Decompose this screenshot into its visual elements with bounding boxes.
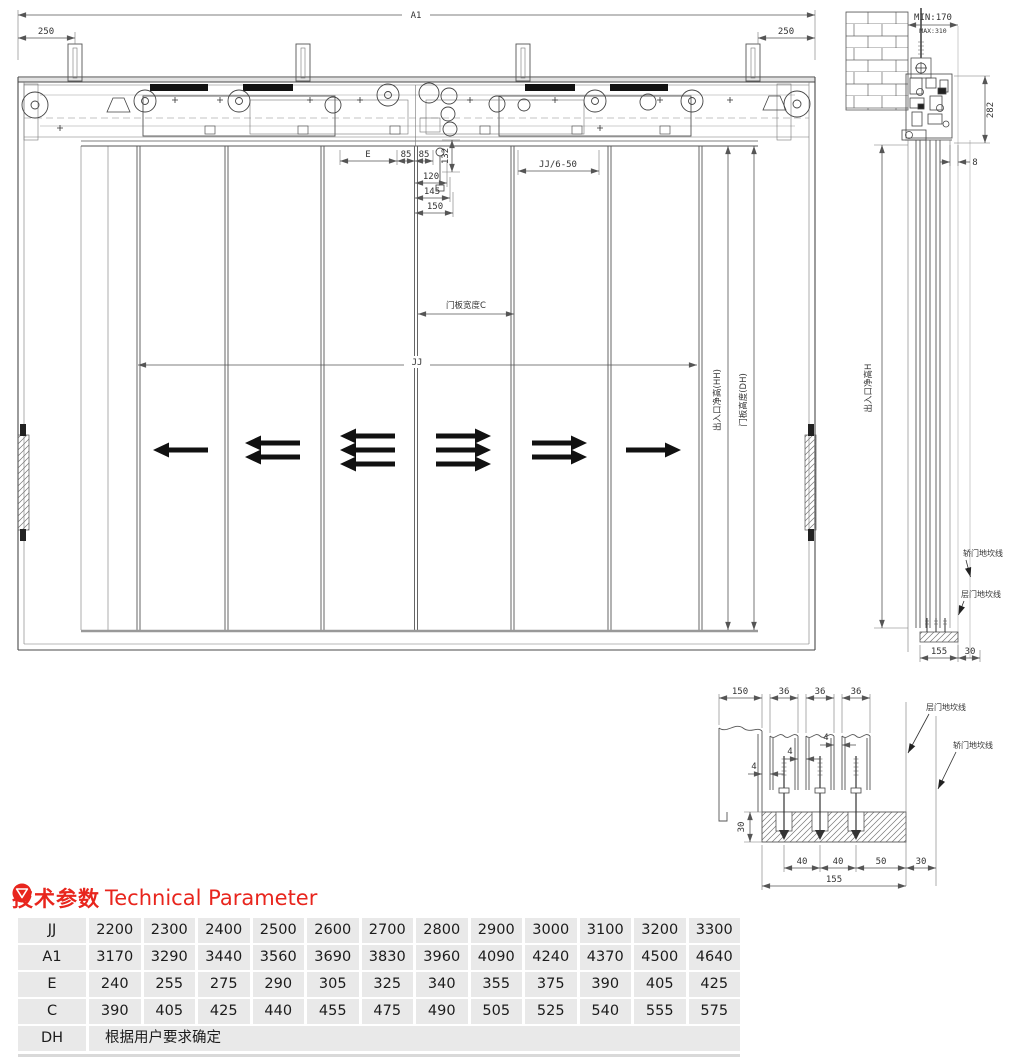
dim-door-width-c: 门板宽度C [446, 300, 486, 311]
door-direction-arrow [626, 443, 681, 458]
value-cell: 275 [198, 972, 250, 997]
door-direction-arrow [340, 457, 395, 472]
value-cell: 490 [416, 999, 468, 1024]
side-view: MIN:170 MAX:310 282 8 出入口净高H 155 30 轿门地坎… [846, 8, 1003, 662]
value-cell: 355 [471, 972, 523, 997]
value-cell: 340 [416, 972, 468, 997]
jamb-seals [18, 424, 816, 541]
value-cell: 240 [89, 972, 141, 997]
value-cell: 405 [634, 972, 686, 997]
value-cell: 2700 [362, 918, 414, 943]
value-cell: 2400 [198, 918, 250, 943]
dim-30: 30 [965, 647, 976, 657]
row-label: JJ [18, 918, 86, 943]
value-cell: 555 [634, 999, 686, 1024]
table-row: E240255275290305325340355375390405425 [18, 972, 740, 997]
side-mechanism [902, 74, 952, 140]
door-direction-arrow [153, 443, 208, 458]
page: A1 250 250 E 85 85 132 120 145 150 JJ/6-… [0, 0, 1018, 1057]
sill-detail-view: 150 36 36 36 4 4 4 30 40 40 50 [719, 687, 993, 890]
label-entrance-height-hh: 出入口净高(HH) [712, 369, 723, 431]
value-cell: 3560 [253, 945, 305, 970]
value-cell: 255 [144, 972, 196, 997]
dim-50: 50 [876, 857, 887, 867]
hanger-plates [24, 84, 791, 140]
value-cell: 540 [580, 999, 632, 1024]
label-landing-sill-line: 层门地坎线 [926, 702, 966, 712]
value-cell: 2200 [89, 918, 141, 943]
value-cell: 455 [307, 999, 359, 1024]
table-row: C390405425440455475490505525540555575 [18, 999, 740, 1024]
value-cell: 390 [89, 999, 141, 1024]
front-view: A1 250 250 E 85 85 132 120 145 150 JJ/6-… [18, 9, 816, 650]
value-cell: 4640 [689, 945, 741, 970]
dim-e: E [365, 150, 370, 160]
dim-132: 132 [441, 148, 451, 164]
value-cell: 3960 [416, 945, 468, 970]
value-cell: 305 [307, 972, 359, 997]
value-cell: 505 [471, 999, 523, 1024]
dim-8: 8 [972, 158, 977, 168]
value-cell: 440 [253, 999, 305, 1024]
value-cell: 3690 [307, 945, 359, 970]
down-arrow-badge-icon [326, 888, 346, 908]
row-note: 根据用户要求确定 [89, 1026, 740, 1051]
pulleys [22, 83, 810, 136]
technical-drawing: A1 250 250 E 85 85 132 120 145 150 JJ/6-… [0, 0, 1018, 900]
dim-155: 155 [826, 875, 842, 885]
dim-jj6-50: JJ/6-50 [539, 160, 577, 170]
dim-min-170: MIN:170 [914, 13, 952, 23]
value-cell: 475 [362, 999, 414, 1024]
top-brackets [68, 44, 760, 81]
dim-a1: A1 [411, 11, 422, 21]
value-cell: 3290 [144, 945, 196, 970]
value-cell: 575 [689, 999, 741, 1024]
dim-4-3: 4 [823, 733, 828, 743]
label-car-sill-line: 轿门地坎线 [963, 548, 1003, 558]
value-cell: 2500 [253, 918, 305, 943]
wall-section [846, 12, 908, 110]
dim-30b: 30 [916, 857, 927, 867]
door-direction-arrow [245, 436, 300, 451]
dim-30: 30 [737, 822, 747, 833]
value-cell: 4240 [525, 945, 577, 970]
dim-jj: JJ [412, 358, 423, 368]
dim-150: 150 [732, 687, 748, 697]
value-cell: 3170 [89, 945, 141, 970]
value-cell: 2300 [144, 918, 196, 943]
value-cell: 4500 [634, 945, 686, 970]
dim-36-2: 36 [815, 687, 826, 697]
dim-36-3: 36 [851, 687, 862, 697]
row-label: DH [18, 1026, 86, 1051]
value-cell: 3200 [634, 918, 686, 943]
track-rail [18, 78, 815, 82]
value-cell: 325 [362, 972, 414, 997]
dim-145: 145 [424, 187, 440, 197]
value-cell: 3440 [198, 945, 250, 970]
table-row: DH根据用户要求确定 [18, 1026, 740, 1051]
label-entrance-height-h: 出入口净高H [863, 364, 874, 413]
dim-36-1: 36 [779, 687, 790, 697]
value-cell: 3000 [525, 918, 577, 943]
value-cell: 290 [253, 972, 305, 997]
door-direction-arrow [436, 443, 491, 458]
dim-155: 155 [931, 647, 947, 657]
dim-120: 120 [423, 172, 439, 182]
anchor-bolts [776, 756, 864, 840]
value-cell: 4090 [471, 945, 523, 970]
dim-max-310: MAX:310 [919, 27, 946, 35]
dim-250-left: 250 [38, 27, 54, 37]
table-row: A131703290344035603690383039604090424043… [18, 945, 740, 970]
row-label: E [18, 972, 86, 997]
door-direction-arrow [532, 450, 587, 465]
value-cell: 525 [525, 999, 577, 1024]
door-direction-arrow [245, 450, 300, 465]
dim-4-1: 4 [751, 762, 756, 772]
dim-40-2: 40 [833, 857, 844, 867]
value-cell: 2800 [416, 918, 468, 943]
dim-150: 150 [427, 202, 443, 212]
value-cell: 3100 [580, 918, 632, 943]
value-cell: 2900 [471, 918, 523, 943]
section-heading: 技术参数 Technical Parameter [12, 883, 346, 913]
table-row: JJ22002300240025002600270028002900300031… [18, 918, 740, 943]
door-direction-arrow [340, 443, 395, 458]
dim-4-2: 4 [787, 747, 792, 757]
door-direction-arrow [436, 429, 491, 444]
door-direction-arrow [436, 457, 491, 472]
value-cell: 425 [198, 999, 250, 1024]
dim-85-left: 85 [401, 150, 412, 160]
dim-282: 282 [986, 102, 996, 118]
row-label: C [18, 999, 86, 1024]
door-direction-arrow [532, 436, 587, 451]
dim-85-right: 85 [419, 150, 430, 160]
side-door-panels [916, 140, 940, 628]
value-cell: 3830 [362, 945, 414, 970]
value-cell: 390 [580, 972, 632, 997]
heading-en: Technical Parameter [105, 886, 317, 910]
dim-40-1: 40 [797, 857, 808, 867]
row-label: A1 [18, 945, 86, 970]
value-cell: 425 [689, 972, 741, 997]
door-direction-arrows [153, 429, 681, 472]
dim-250-right: 250 [778, 27, 794, 37]
value-cell: 405 [144, 999, 196, 1024]
value-cell: 2600 [307, 918, 359, 943]
value-cell: 4370 [580, 945, 632, 970]
label-door-height-dh: 门板高度(DH) [738, 373, 749, 427]
parameter-table: JJ22002300240025002600270028002900300031… [18, 918, 740, 1053]
label-car-sill-line: 轿门地坎线 [953, 740, 993, 750]
value-cell: 3300 [689, 918, 741, 943]
door-direction-arrow [340, 429, 395, 444]
label-landing-sill-line: 层门地坎线 [961, 589, 1001, 599]
value-cell: 375 [525, 972, 577, 997]
